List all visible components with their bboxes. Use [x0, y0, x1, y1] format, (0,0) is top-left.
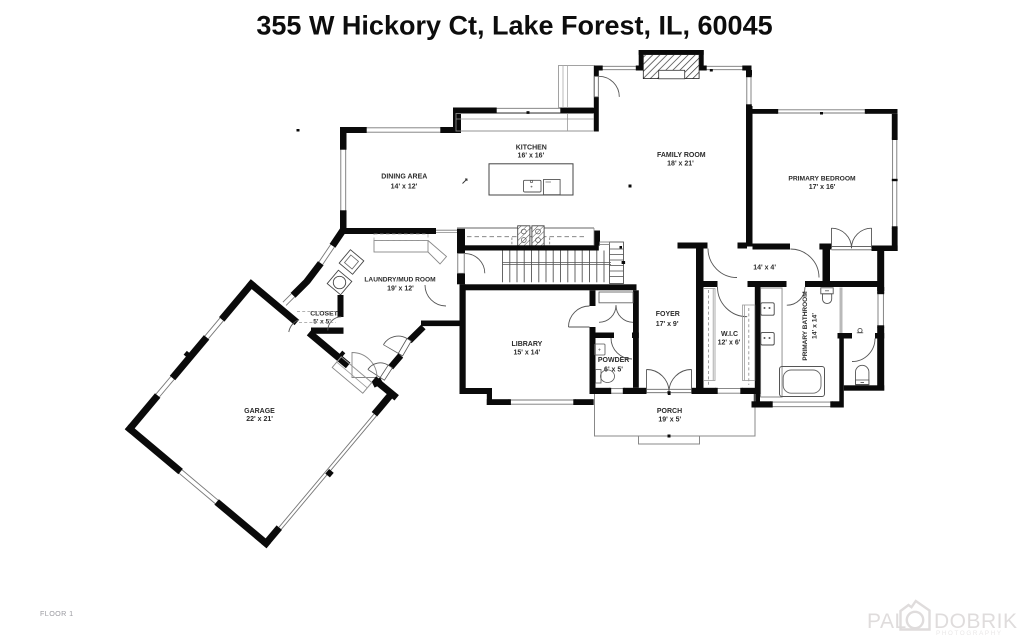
svg-text:PRIMARY BATHROOM: PRIMARY BATHROOM — [802, 291, 809, 360]
svg-text:+: + — [598, 348, 601, 354]
svg-text:12' x 6': 12' x 6' — [718, 339, 741, 346]
svg-text:FAMILY ROOM: FAMILY ROOM — [657, 152, 706, 159]
svg-text:LIBRARY: LIBRARY — [511, 341, 542, 348]
svg-text:17' x 9': 17' x 9' — [656, 321, 679, 328]
svg-text:KITCHEN: KITCHEN — [516, 144, 547, 151]
svg-text:16' x 16': 16' x 16' — [518, 152, 545, 159]
svg-text:GARAGE: GARAGE — [244, 408, 275, 415]
svg-text:FLOOR 1: FLOOR 1 — [40, 609, 74, 618]
svg-text:14' x 4': 14' x 4' — [753, 264, 776, 271]
svg-text:PHOTOGRAPHY: PHOTOGRAPHY — [936, 630, 1003, 637]
svg-text:18' x 21': 18' x 21' — [667, 160, 694, 167]
svg-text:15' x 14': 15' x 14' — [513, 349, 540, 356]
svg-text:17' x 16': 17' x 16' — [809, 184, 836, 191]
svg-text:FOYER: FOYER — [656, 311, 680, 318]
svg-text:PORCH: PORCH — [657, 408, 682, 415]
svg-text:22' x 21': 22' x 21' — [246, 416, 273, 423]
svg-text:19' x 12': 19' x 12' — [387, 286, 414, 293]
svg-text:14' x 14': 14' x 14' — [812, 313, 819, 339]
svg-text:355 W Hickory Ct, Lake Forest,: 355 W Hickory Ct, Lake Forest, IL, 60045 — [256, 11, 772, 41]
svg-text:5' x 5': 5' x 5' — [313, 318, 331, 325]
svg-text:W.I.C: W.I.C — [721, 331, 738, 338]
svg-text:PRIMARY BEDROOM: PRIMARY BEDROOM — [788, 176, 856, 183]
svg-text:14' x 12': 14' x 12' — [391, 184, 418, 191]
svg-text:LAUNDRY/MUD ROOM: LAUNDRY/MUD ROOM — [364, 277, 436, 284]
svg-text:19' x 5': 19' x 5' — [658, 416, 681, 423]
svg-text:DINING AREA: DINING AREA — [381, 173, 427, 180]
